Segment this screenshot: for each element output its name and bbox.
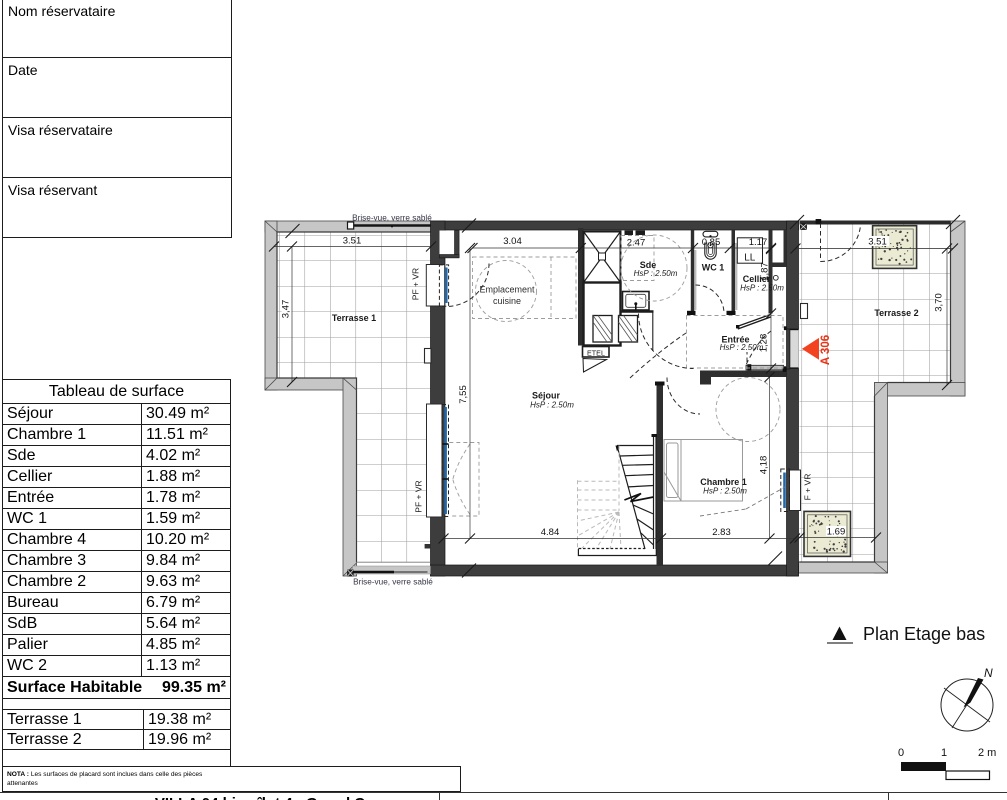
svg-text:4.84: 4.84 [541, 527, 560, 538]
svg-text:Séjour: Séjour [532, 391, 561, 401]
svg-text:7,55: 7,55 [458, 385, 469, 404]
svg-text:3.51: 3.51 [343, 236, 362, 247]
svg-text:3,70: 3,70 [934, 293, 945, 312]
svg-text:2.47: 2.47 [627, 238, 646, 249]
svg-text:1: 1 [941, 747, 947, 759]
svg-text:3.51: 3.51 [868, 237, 887, 248]
svg-text:HsP : 2.50m: HsP : 2.50m [720, 343, 764, 352]
svg-text:N: N [984, 666, 993, 680]
svg-text:Emplacement: Emplacement [479, 285, 535, 295]
svg-text:Cellier: Cellier [743, 274, 771, 284]
svg-text:Terrasse 1: Terrasse 1 [332, 313, 376, 323]
svg-text:0.85: 0.85 [702, 237, 721, 248]
svg-text:PF + VR: PF + VR [411, 268, 421, 300]
svg-text:HsP : 2.50m: HsP : 2.50m [634, 269, 678, 278]
svg-text:WC 1: WC 1 [702, 263, 725, 273]
svg-text:Plan Etage bas: Plan Etage bas [863, 624, 985, 644]
svg-text:3.04: 3.04 [503, 236, 522, 247]
svg-text:HsP : 2.50m: HsP : 2.50m [530, 401, 574, 410]
svg-text:1.69: 1.69 [827, 527, 846, 538]
svg-text:LL: LL [744, 253, 756, 264]
svg-text:0: 0 [898, 747, 904, 759]
svg-text:PF + VR: PF + VR [414, 480, 424, 512]
svg-text:HsP : 2.50m: HsP : 2.50m [703, 487, 747, 496]
svg-text:Brise-vue, verre sablé: Brise-vue, verre sablé [352, 214, 432, 223]
svg-text:Chambre 1: Chambre 1 [700, 477, 747, 487]
svg-text:4,18: 4,18 [759, 456, 770, 475]
svg-text:cuisine: cuisine [493, 296, 521, 306]
svg-text:2.83: 2.83 [712, 527, 731, 538]
svg-text:HsP : 2.50m: HsP : 2.50m [740, 284, 784, 293]
svg-text:3,47: 3,47 [281, 300, 292, 319]
svg-text:A 306: A 306 [820, 335, 832, 365]
svg-text:Terrasse 2: Terrasse 2 [874, 308, 918, 318]
svg-text:2 m: 2 m [978, 747, 996, 759]
svg-text:1.17: 1.17 [749, 237, 768, 248]
svg-text:ETEL: ETEL [587, 349, 605, 358]
svg-text:F + VR: F + VR [803, 474, 813, 501]
svg-text:Brise-vue, verre sablé: Brise-vue, verre sablé [353, 578, 433, 587]
